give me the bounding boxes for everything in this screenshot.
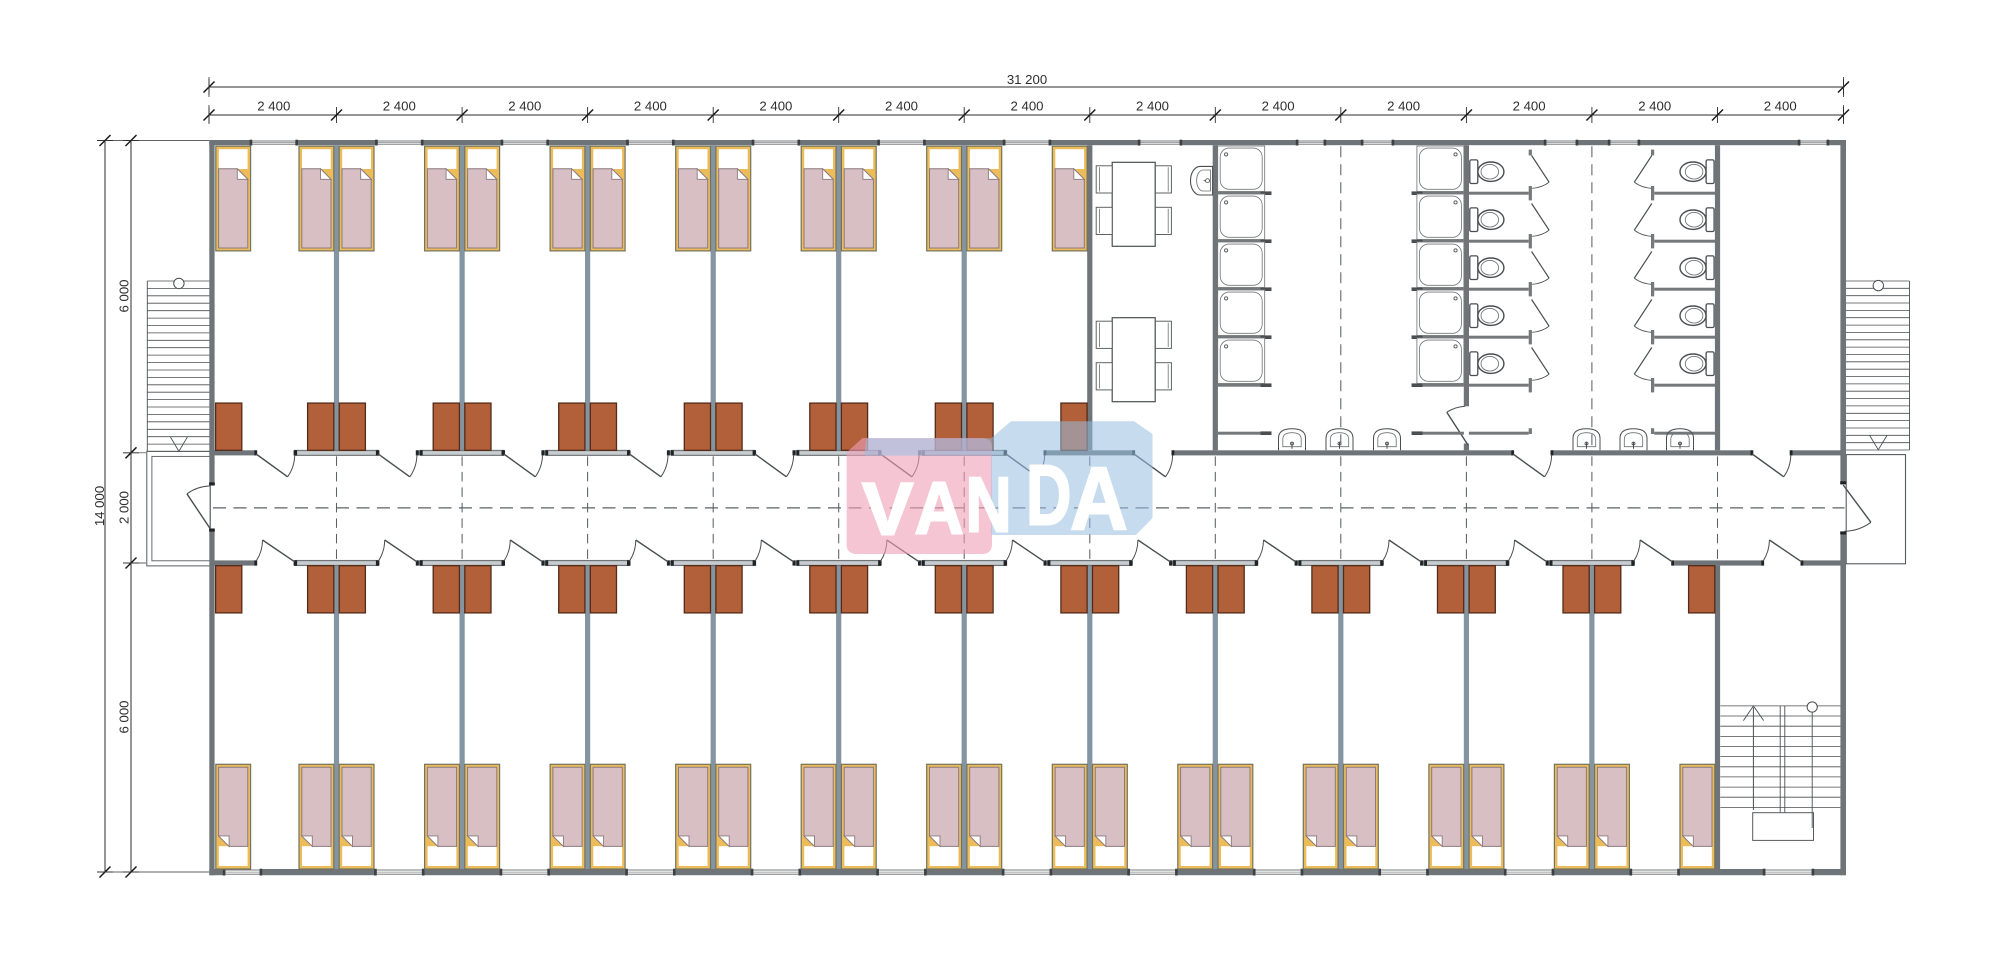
svg-text:2 400: 2 400 <box>1764 99 1797 114</box>
svg-text:2 400: 2 400 <box>257 99 290 114</box>
svg-text:A: A <box>915 468 964 550</box>
svg-text:D: D <box>1026 447 1071 542</box>
svg-text:2 400: 2 400 <box>1387 99 1420 114</box>
svg-text:2 400: 2 400 <box>885 99 918 114</box>
svg-text:N: N <box>966 462 1012 549</box>
svg-text:2 400: 2 400 <box>508 99 541 114</box>
svg-text:6 000: 6 000 <box>117 700 132 733</box>
svg-text:2 400: 2 400 <box>1136 99 1169 114</box>
svg-text:2 400: 2 400 <box>383 99 416 114</box>
svg-text:6 000: 6 000 <box>117 279 132 312</box>
svg-text:2 400: 2 400 <box>1513 99 1546 114</box>
svg-text:31 200: 31 200 <box>1007 72 1047 87</box>
svg-text:2 400: 2 400 <box>1262 99 1295 114</box>
svg-text:14 000: 14 000 <box>92 486 107 526</box>
svg-text:2 400: 2 400 <box>1010 99 1043 114</box>
svg-text:2 400: 2 400 <box>634 99 667 114</box>
svg-text:2 400: 2 400 <box>759 99 792 114</box>
svg-text:V: V <box>862 468 913 550</box>
svg-text:2 000: 2 000 <box>117 491 132 524</box>
svg-text:2 400: 2 400 <box>1638 99 1671 114</box>
svg-text:A: A <box>1070 448 1128 548</box>
